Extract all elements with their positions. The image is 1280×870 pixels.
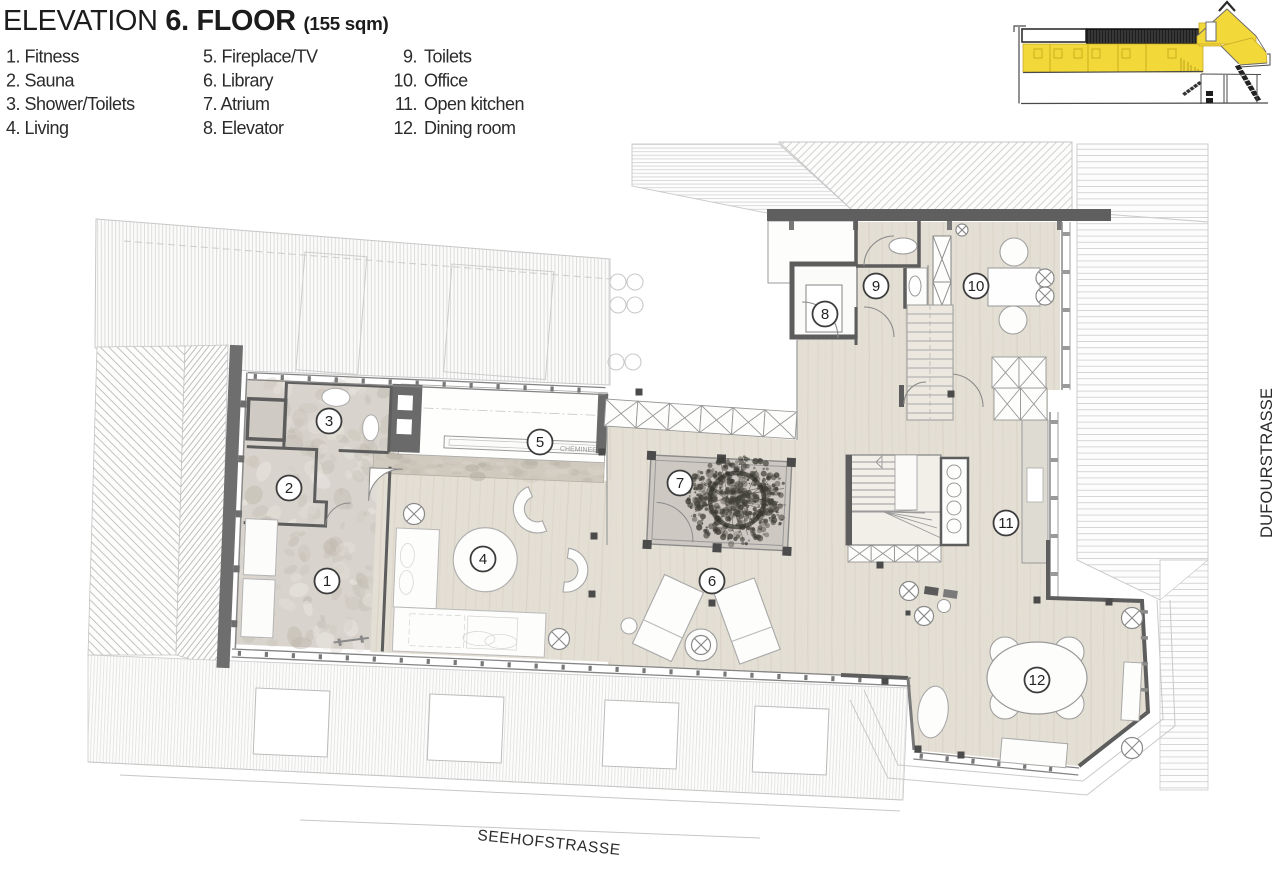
svg-text:7. Atrium: 7. Atrium [203, 94, 270, 114]
svg-text:5: 5 [536, 434, 544, 451]
svg-text:3: 3 [325, 413, 333, 430]
svg-text:9.: 9. [403, 47, 417, 67]
svg-text:Office: Office [424, 70, 468, 90]
svg-text:Open kitchen: Open kitchen [424, 94, 524, 114]
svg-text:1. Fitness: 1. Fitness [6, 47, 80, 67]
svg-text:6. Library: 6. Library [203, 70, 274, 90]
svg-text:6: 6 [708, 573, 716, 590]
svg-text:2. Sauna: 2. Sauna [6, 70, 76, 90]
svg-text:2: 2 [285, 480, 293, 497]
svg-text:5. Fireplace/TV: 5. Fireplace/TV [203, 47, 318, 67]
svg-text:12: 12 [1029, 672, 1046, 689]
svg-text:11.: 11. [395, 94, 417, 114]
svg-text:10: 10 [968, 278, 985, 295]
svg-text:7: 7 [676, 475, 684, 492]
svg-text:12.: 12. [393, 118, 417, 138]
svg-text:Dining room: Dining room [424, 118, 516, 138]
svg-text:4. Living: 4. Living [6, 118, 69, 138]
svg-text:8: 8 [821, 306, 829, 323]
svg-text:9: 9 [872, 278, 880, 295]
svg-text:8. Elevator: 8. Elevator [203, 118, 284, 138]
svg-text:3. Shower/Toilets: 3. Shower/Toilets [6, 94, 135, 114]
svg-text:4: 4 [479, 551, 487, 568]
svg-text:1: 1 [323, 573, 331, 590]
svg-text:10.: 10. [393, 70, 417, 90]
svg-text:11: 11 [998, 515, 1014, 532]
svg-text:DUFOURSTRASSE: DUFOURSTRASSE [1258, 388, 1276, 538]
svg-text:Toilets: Toilets [424, 47, 472, 67]
